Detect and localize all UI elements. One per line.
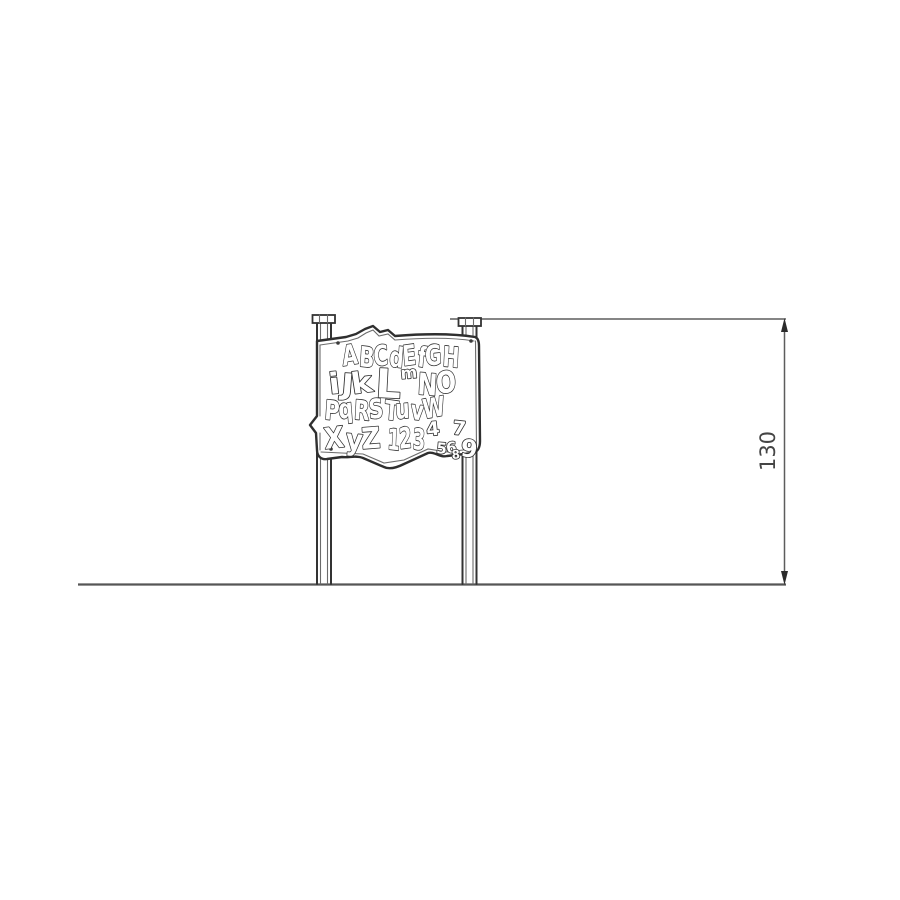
height-dimension: 130: [756, 318, 788, 585]
screw-icon: [336, 341, 340, 345]
alphabet-row-4-digit9: 9: [459, 434, 479, 464]
screw-icon: [469, 339, 473, 343]
right-post-cap: [459, 318, 482, 326]
dimension-arrow-down-icon: [781, 571, 788, 585]
alphabet-row-4-digit4: 4: [425, 418, 440, 441]
technical-drawing-canvas: 130: [0, 0, 900, 900]
alphabet-row-2-m: m: [400, 363, 418, 383]
dimension-arrow-up-icon: [781, 318, 788, 332]
alphabet-panel: ABCdEfGH iJk L m NO PqRSTuvW XyZ 123 4 5…: [310, 326, 480, 468]
alphabet-row-4-xyz: XyZ: [322, 420, 381, 457]
alphabet-row-4-123: 123: [387, 421, 427, 457]
alphabet-row-4-digit8: 8: [451, 447, 461, 462]
left-post-cap: [313, 315, 336, 323]
playground-sign-elevation-drawing: 130: [0, 0, 900, 900]
dimension-label: 130: [756, 431, 780, 471]
